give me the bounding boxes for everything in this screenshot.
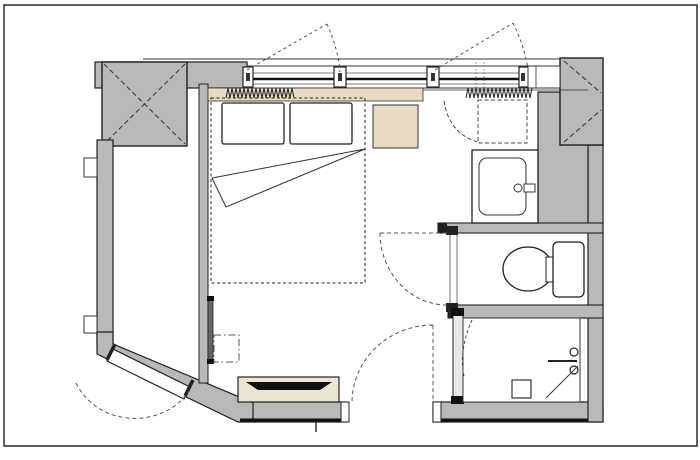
pillow-right: [290, 103, 352, 144]
toilet-door-frame-track: [450, 233, 457, 305]
casement-1-swing-arc: [327, 24, 340, 72]
window-end-return: [528, 66, 560, 88]
window-band: [247, 66, 528, 88]
toilet-door-swing-arc: [380, 233, 447, 305]
tv-flatscreen: [246, 382, 332, 390]
casement-2-leaf-dashed: [435, 23, 513, 70]
floor-plan-page: [0, 0, 700, 460]
bedroom-door-jamb-right: [433, 402, 441, 422]
mullion-tick-3: [431, 73, 435, 81]
mirror-panel-cap-bottom: [207, 359, 214, 364]
shower-valve-upper: [570, 348, 578, 356]
shower-drain: [512, 380, 531, 398]
bedroom-door-jamb-left: [341, 402, 349, 422]
shower-wall-cap-top: [451, 308, 464, 316]
wardrobe-mirror-panel: [208, 298, 213, 362]
left-wall-notch-upper: [84, 158, 97, 177]
right-wall: [588, 145, 603, 422]
bedroom-door-swing-arc: [352, 325, 433, 403]
top-right-column: [560, 58, 603, 145]
casement-2-swing-arc: [513, 23, 528, 70]
west-partition-wall: [199, 84, 208, 383]
pillow-left: [222, 103, 284, 144]
bath-north-wall-end-cap: [438, 223, 447, 233]
mirror-swing-arc-dashed: [444, 101, 478, 142]
nightstand: [373, 105, 418, 148]
mullion-tick-1: [246, 73, 250, 81]
toilet-tank: [553, 242, 584, 297]
mullion-tick-2: [338, 73, 342, 81]
faucet-spout: [524, 184, 535, 192]
left-wall: [97, 140, 113, 345]
faucet-knob: [514, 184, 522, 192]
floor-plan-svg: [0, 0, 700, 460]
shower-glass-wall: [453, 311, 463, 402]
overhead-item-dashdot-box: [214, 335, 239, 362]
diagonal-entry-wall: [97, 332, 256, 422]
casement-1-leaf-dashed: [247, 24, 327, 70]
bath-north-wall: [438, 223, 603, 233]
curtain-right: [466, 88, 532, 98]
bed-sheet-fold: [212, 149, 365, 207]
mullion-tick-4: [521, 73, 525, 81]
left-wall-notch-lower: [84, 316, 97, 333]
mirror-cabinet-dashed: [478, 100, 527, 143]
toilet-door-jamb-top: [446, 226, 458, 235]
mirror-panel-cap-top: [207, 296, 214, 301]
shower-wall-cap-bottom: [451, 396, 464, 404]
toilet-shower-divider-wall: [448, 305, 603, 318]
